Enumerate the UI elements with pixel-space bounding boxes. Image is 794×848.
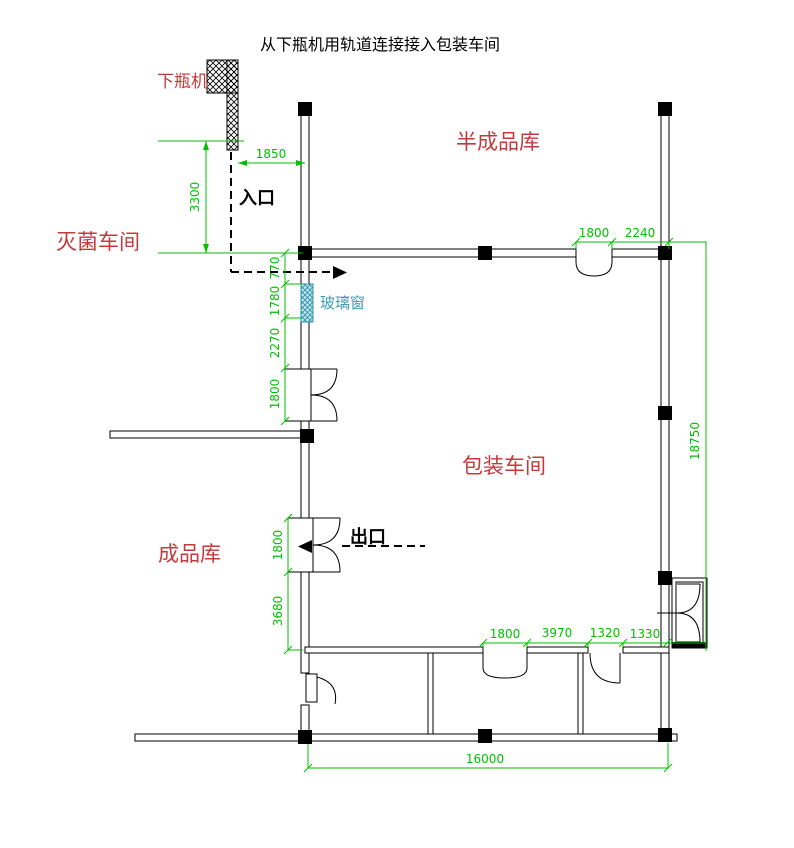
dim-value: 1780 xyxy=(268,286,282,317)
workshop-bottom-wall-seg1 xyxy=(305,647,483,653)
label-glass-window: 玻璃窗 xyxy=(320,294,365,312)
dim-bottom-overall-16000: 16000 xyxy=(304,743,672,772)
dim-value: 3680 xyxy=(271,596,285,627)
dim-value: 1800 xyxy=(490,627,521,641)
dim-value: 770 xyxy=(268,257,282,280)
dim-value: 2270 xyxy=(268,328,282,359)
label-sterilization-workshop: 灭菌车间 xyxy=(56,230,140,254)
door-leaf xyxy=(306,674,317,702)
door-bottom-wall-single xyxy=(590,653,620,683)
workshop-bottom-wall-seg2 xyxy=(527,647,588,653)
drawing-title: 从下瓶机用轨道连接接入包装车间 xyxy=(260,35,500,54)
dim-value: 3300 xyxy=(188,182,202,213)
dim-track-offset-1850: 1850 xyxy=(238,147,305,166)
dim-line xyxy=(576,242,706,651)
outer-bottom-wall xyxy=(135,734,677,741)
column xyxy=(478,729,492,743)
left-wall-upper xyxy=(301,109,309,369)
label-packaging-workshop: 包装车间 xyxy=(462,454,546,478)
column xyxy=(658,102,672,116)
column xyxy=(658,571,672,585)
column xyxy=(658,406,672,420)
glass-window-symbol xyxy=(301,284,313,322)
top-wall-left-seg xyxy=(305,249,576,257)
column xyxy=(658,246,672,260)
column xyxy=(658,728,672,742)
dim-left-wall-chain: 770 1780 2270 1800 xyxy=(268,249,301,425)
dim-arrow xyxy=(203,141,209,150)
door-exit-double xyxy=(288,518,340,572)
dim-value: 16000 xyxy=(466,752,504,766)
door-bottom-wall-double xyxy=(483,653,527,678)
exit-arrow-icon xyxy=(298,540,312,553)
label-semi-finished-warehouse: 半成品库 xyxy=(456,130,540,154)
dim-exit-wall-chain: 1800 3680 xyxy=(271,514,303,654)
column xyxy=(300,429,314,443)
workshop-bottom-wall-seg3 xyxy=(623,647,669,653)
dim-top-wall-chain: 1800 2240 18750 xyxy=(572,226,706,651)
label-entrance: 入口 xyxy=(239,188,275,209)
entry-track-path xyxy=(231,152,347,279)
dim-value: 3970 xyxy=(542,626,573,640)
dim-line xyxy=(285,253,301,421)
bottle-unloader-block xyxy=(207,60,238,150)
interior-wall-2 xyxy=(578,653,583,734)
door-left-wall-double xyxy=(285,369,337,421)
machine-hatch-vertical xyxy=(227,60,238,150)
dim-value: 1800 xyxy=(271,530,285,561)
label-finished-goods-warehouse: 成品库 xyxy=(158,542,221,566)
dim-value: 1800 xyxy=(268,379,282,410)
floor-plan-drawing: 1850 3300 770 1780 2270 1800 1800 3680 1… xyxy=(0,0,794,848)
dim-value: 1330 xyxy=(630,627,661,641)
dim-value: 18750 xyxy=(688,422,702,460)
dim-arrow xyxy=(203,244,209,253)
floor-plan-canvas: 1850 3300 770 1780 2270 1800 1800 3680 1… xyxy=(0,0,794,848)
label-exit: 出口 xyxy=(350,526,386,548)
column xyxy=(298,730,312,744)
interior-wall-1 xyxy=(428,653,433,734)
column xyxy=(298,102,312,116)
door-swing-arc xyxy=(317,677,336,704)
column xyxy=(478,246,492,260)
door-top-wall-double xyxy=(576,249,612,276)
entry-arrow-icon xyxy=(333,266,347,279)
dim-value: 1850 xyxy=(256,147,287,161)
door-left-wall-single xyxy=(306,674,336,704)
left-wall-mid2 xyxy=(301,572,309,673)
left-divider-wall xyxy=(110,431,303,438)
dim-arrow xyxy=(238,160,247,166)
label-bottle-unloader: 下瓶机 xyxy=(157,72,208,92)
dim-value: 1320 xyxy=(590,626,621,640)
dim-value: 1800 xyxy=(579,226,610,240)
dim-value: 2240 xyxy=(625,226,656,240)
